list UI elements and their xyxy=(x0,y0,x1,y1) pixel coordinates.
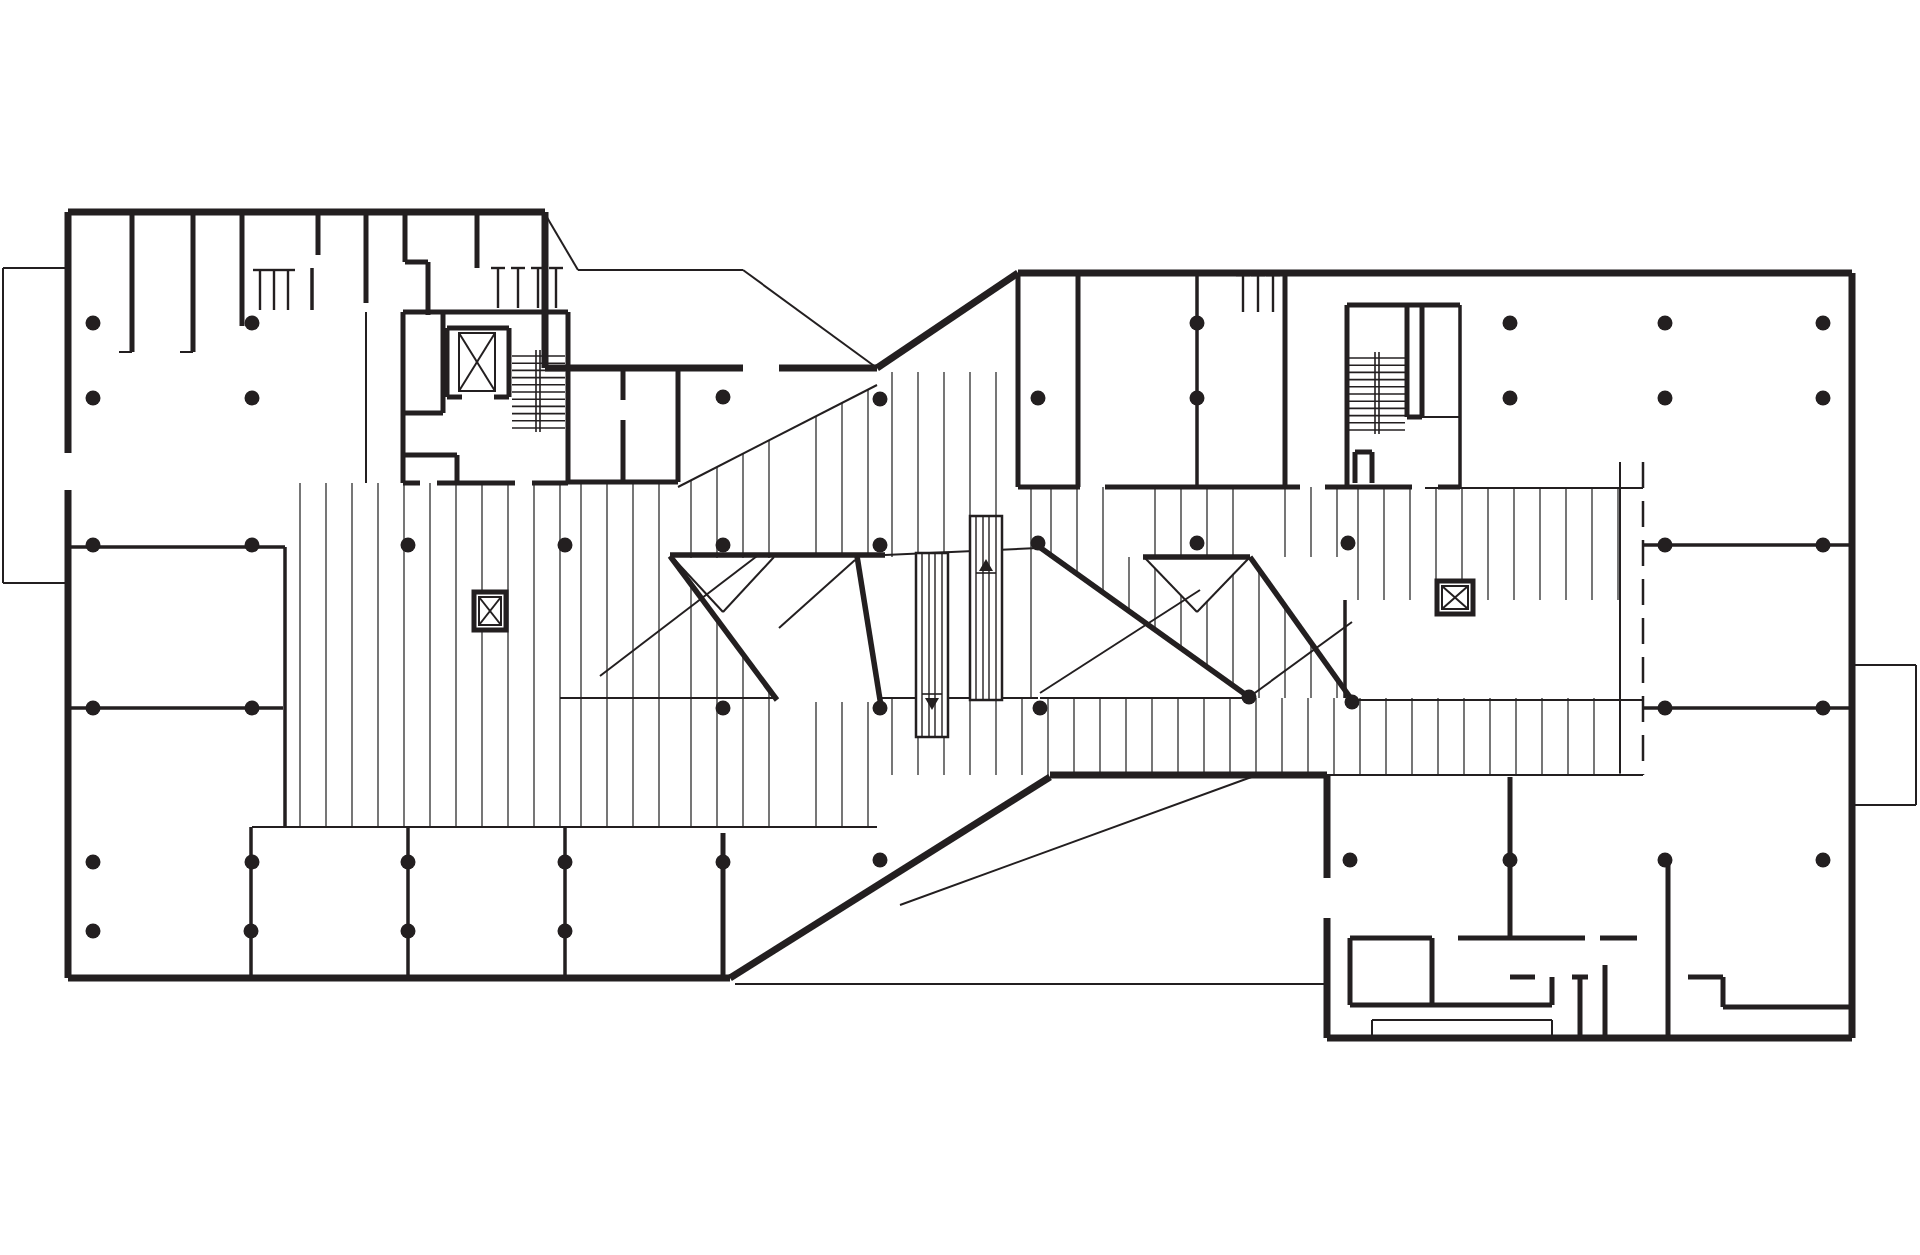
column-dot xyxy=(86,316,101,331)
floor-plan-drawing xyxy=(0,0,1920,1255)
column-dot xyxy=(1343,853,1358,868)
column-dot xyxy=(401,924,416,939)
column-dot xyxy=(86,924,101,939)
column-dot xyxy=(245,538,260,553)
column-dot xyxy=(1190,316,1205,331)
column-dot xyxy=(1658,853,1673,868)
column-dot xyxy=(873,538,888,553)
column-dot xyxy=(873,392,888,407)
column-dot xyxy=(1503,316,1518,331)
column-dot xyxy=(1658,701,1673,716)
column-dot xyxy=(245,701,260,716)
drive-lane xyxy=(1235,487,1275,560)
column-dot xyxy=(86,391,101,406)
column-dot xyxy=(1190,391,1205,406)
column-dot xyxy=(1816,701,1831,716)
column-dot xyxy=(244,924,259,939)
column-dot xyxy=(1658,316,1673,331)
column-dot xyxy=(1503,391,1518,406)
column-dot xyxy=(716,538,731,553)
column-dot xyxy=(873,701,888,716)
column-dot xyxy=(401,538,416,553)
column-dot xyxy=(245,855,260,870)
column-dot xyxy=(558,538,573,553)
shaft-outline xyxy=(970,516,1002,700)
drive-lane xyxy=(777,557,803,827)
column-dot xyxy=(1503,853,1518,868)
column-dot xyxy=(245,391,260,406)
column-dot xyxy=(1816,538,1831,553)
column-dot xyxy=(716,701,731,716)
floor-plan-page xyxy=(0,0,1920,1255)
column-dot xyxy=(1658,391,1673,406)
column-dot xyxy=(558,924,573,939)
column-dot xyxy=(873,853,888,868)
column-dot xyxy=(1816,316,1831,331)
column-dot xyxy=(1658,538,1673,553)
column-dot xyxy=(558,855,573,870)
column-dot xyxy=(1031,536,1046,551)
column-dot xyxy=(1242,690,1257,705)
drive-lane xyxy=(1118,487,1145,557)
drive-lane xyxy=(1345,600,1643,698)
column-dot xyxy=(1816,391,1831,406)
column-dot xyxy=(1031,391,1046,406)
column-dot xyxy=(1033,701,1048,716)
column-dot xyxy=(716,390,731,405)
column-dot xyxy=(401,855,416,870)
column-dot xyxy=(1345,695,1360,710)
column-dot xyxy=(1341,536,1356,551)
column-dot xyxy=(86,538,101,553)
column-dot xyxy=(86,855,101,870)
column-dot xyxy=(1816,853,1831,868)
column-dot xyxy=(86,701,101,716)
column-dot xyxy=(1190,536,1205,551)
column-dot xyxy=(245,316,260,331)
column-dot xyxy=(716,855,731,870)
